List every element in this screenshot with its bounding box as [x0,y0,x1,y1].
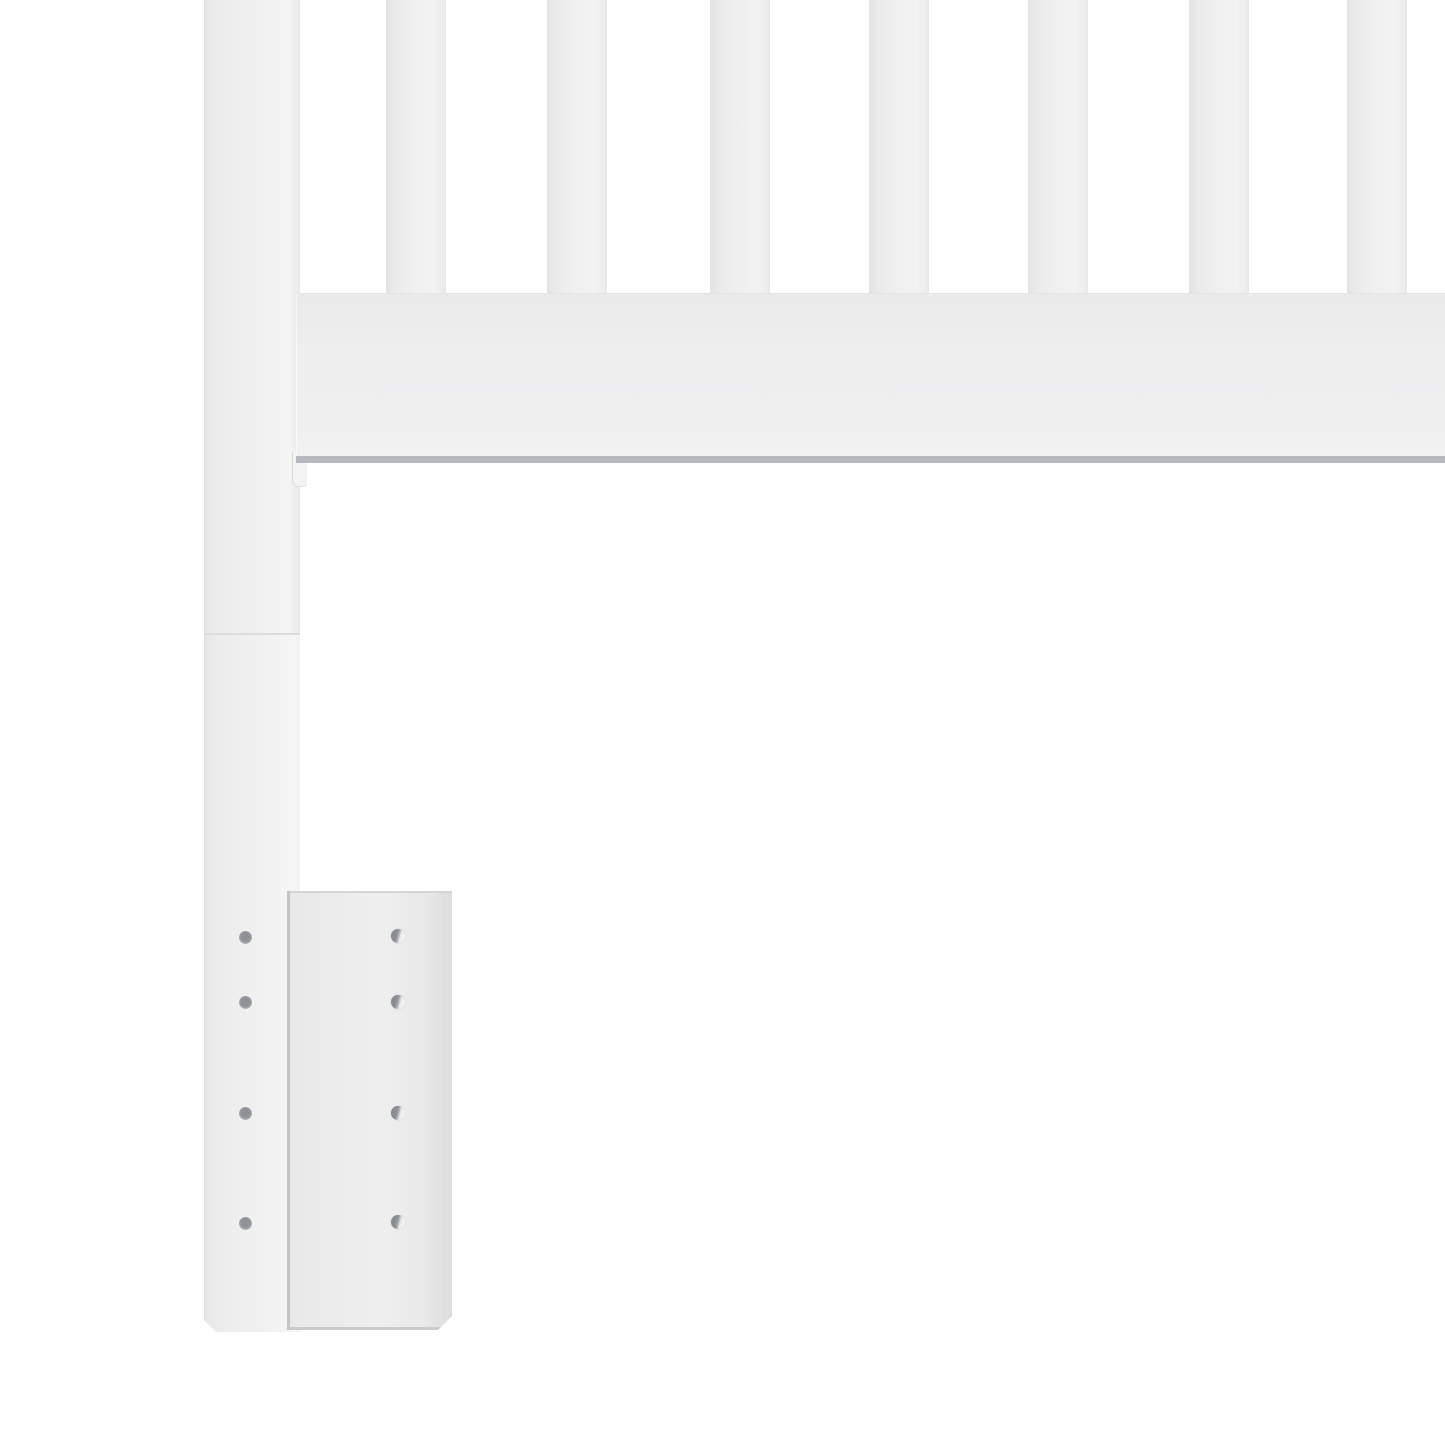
headboard-leg-post [204,0,300,1332]
screw-hole-leg [239,996,252,1009]
screw-hole-leg [239,931,252,944]
headboard-slat [386,0,446,293]
headboard-slat [710,0,770,293]
screw-hole-leg [239,1107,252,1120]
leg-joint-seam [204,633,300,635]
mounting-bracket-plate [287,891,452,1330]
headboard-slat [869,0,929,293]
product-photo-stage [0,0,1445,1445]
screw-hole-bracket [391,995,405,1009]
headboard-slat [1028,0,1088,293]
headboard-slat [547,0,607,293]
headboard-bottom-rail [296,293,1445,463]
screw-hole-leg [239,1217,252,1230]
screw-hole-bracket [391,929,405,943]
headboard-slat [1189,0,1249,293]
screw-hole-bracket [391,1215,405,1229]
screw-hole-bracket [391,1106,405,1120]
headboard-slat [1347,0,1407,293]
